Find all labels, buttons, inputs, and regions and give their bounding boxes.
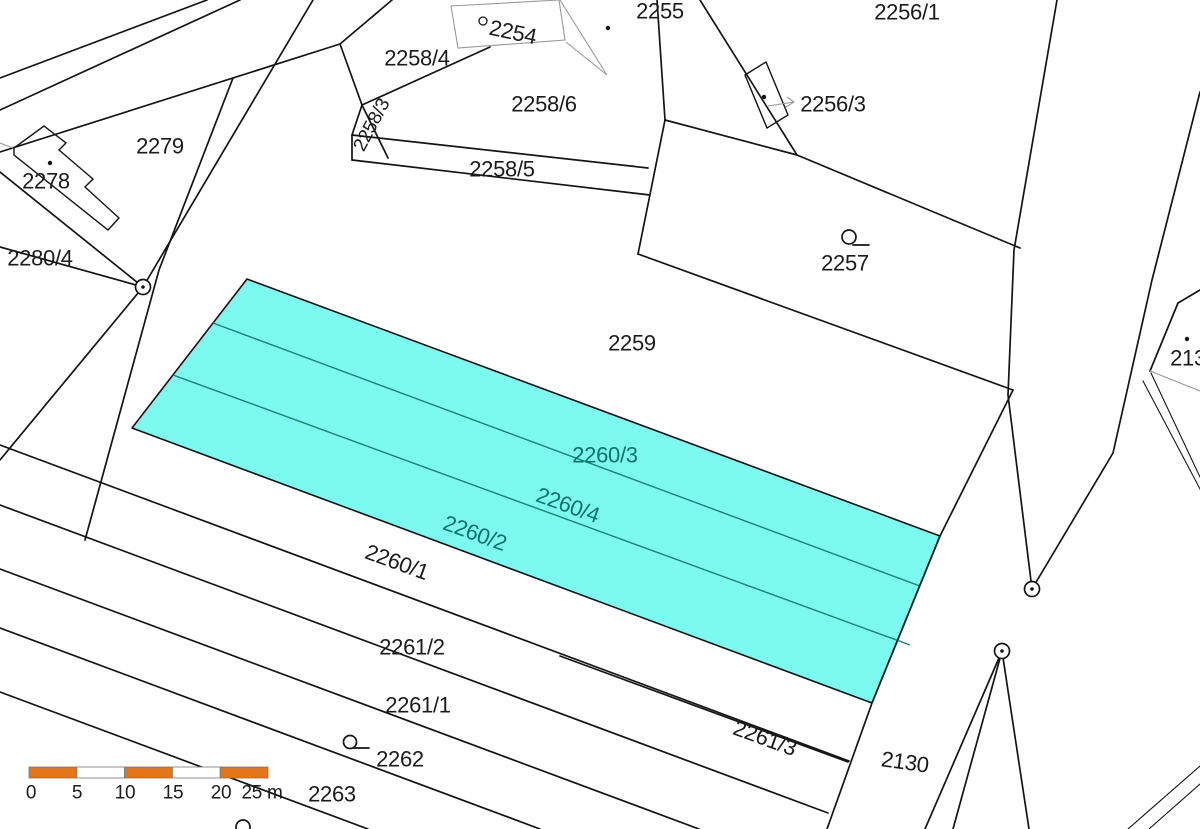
parcel-label-2260-3: 2260/3	[572, 443, 638, 468]
parcel-label-2260-1: 2260/1	[362, 539, 432, 585]
fan-line-3	[1002, 651, 1029, 829]
parcel-label-2258-6: 2258/6	[511, 92, 577, 117]
highlighted-parcels-area[interactable]	[132, 279, 940, 703]
parcel-label-2258-4: 2258/4	[384, 46, 450, 71]
scale-tick-5: 5	[72, 783, 82, 804]
scale-tick-25m: 25 m	[241, 783, 282, 804]
fan-line-2	[953, 651, 1002, 829]
strip-line-2263-south	[0, 692, 368, 829]
scale-bar-segment	[220, 767, 268, 778]
scale-tick-0: 0	[26, 783, 36, 804]
parcel-label-2256-1: 2256/1	[874, 0, 940, 25]
road-east-edge-east-line	[1032, 92, 1200, 589]
point-marker-icon	[606, 26, 610, 30]
scale-bar: 0 5 10 15 20 25 m	[26, 767, 283, 804]
boundary-2256-1-south	[797, 155, 1020, 248]
scale-bar-segment	[29, 767, 77, 778]
parcel-label-2279: 2279	[136, 134, 184, 159]
parcel-label-2259: 2259	[608, 331, 656, 356]
road-edge-upper-1	[0, 0, 207, 78]
arrow-to-2278	[0, 143, 13, 148]
well-symbol-icon	[236, 820, 250, 829]
highlighted-parcel-group[interactable]	[132, 279, 940, 703]
road-edge-upper-2	[0, 0, 240, 110]
scale-bar-segment	[125, 767, 173, 778]
parcel-label-2130: 2130	[880, 746, 931, 777]
parcel-label-2262: 2262	[376, 747, 424, 772]
boundary-2255-west	[638, 0, 665, 254]
parcel-label-2263: 2263	[308, 782, 356, 807]
boundary-2279-north	[0, 0, 392, 152]
junction-point-icon	[136, 280, 151, 295]
parcel-label-2261-2: 2261/2	[379, 635, 445, 660]
corner-double-line-2	[1149, 784, 1200, 829]
survey-point-icon	[479, 17, 487, 25]
scale-bar-segment	[172, 767, 220, 778]
double-line-right-2	[1143, 381, 1200, 489]
cadastral-map-svg: 2254 2255 2256/1 2256/3 2257 2258/4 2258…	[0, 0, 1200, 829]
parcel-label-2261-3: 2261/3	[730, 715, 800, 761]
scale-bar-segment	[77, 767, 125, 778]
parcel-label-2254: 2254	[487, 15, 539, 49]
parcel-label-2258-3: 2258/3	[350, 95, 395, 155]
parcel-label-2261-1: 2261/1	[385, 693, 451, 718]
corner-double-line-1	[1128, 766, 1200, 829]
parcel-label-2256-3: 2256/3	[800, 92, 866, 117]
building-2254-annex-1	[560, 0, 607, 75]
boundary-2257-northwest	[665, 120, 797, 155]
scale-tick-15: 15	[163, 783, 184, 804]
junction-point-icon	[995, 644, 1010, 659]
parcel-label-2278: 2278	[22, 169, 70, 194]
building-2254-annex-2	[566, 42, 607, 75]
point-marker-icon	[48, 161, 52, 165]
cadastral-map-view[interactable]: 2254 2255 2256/1 2256/3 2257 2258/4 2258…	[0, 0, 1200, 829]
well-symbol-icon	[842, 230, 869, 245]
parcel-label-2258-5: 2258/5	[469, 157, 535, 182]
boundary-2255-east	[700, 0, 797, 155]
building-2256-3-outline	[745, 62, 788, 128]
scale-tick-10: 10	[115, 783, 136, 804]
point-marker-icon	[762, 95, 766, 99]
scale-tick-20: 20	[211, 783, 232, 804]
junction-point-icon	[1025, 582, 1040, 597]
road-east-edge-west-line	[1008, 0, 1057, 589]
parcel-label-2280-4: 2280/4	[7, 246, 73, 271]
parcel-label-2255: 2255	[636, 0, 684, 24]
well-symbol-icon	[344, 736, 370, 749]
parcel-label-213x-clipped: 213	[1170, 346, 1200, 371]
point-marker-icon	[1185, 337, 1189, 341]
fan-line-1	[925, 651, 1002, 829]
parcel-label-2257: 2257	[821, 251, 869, 276]
